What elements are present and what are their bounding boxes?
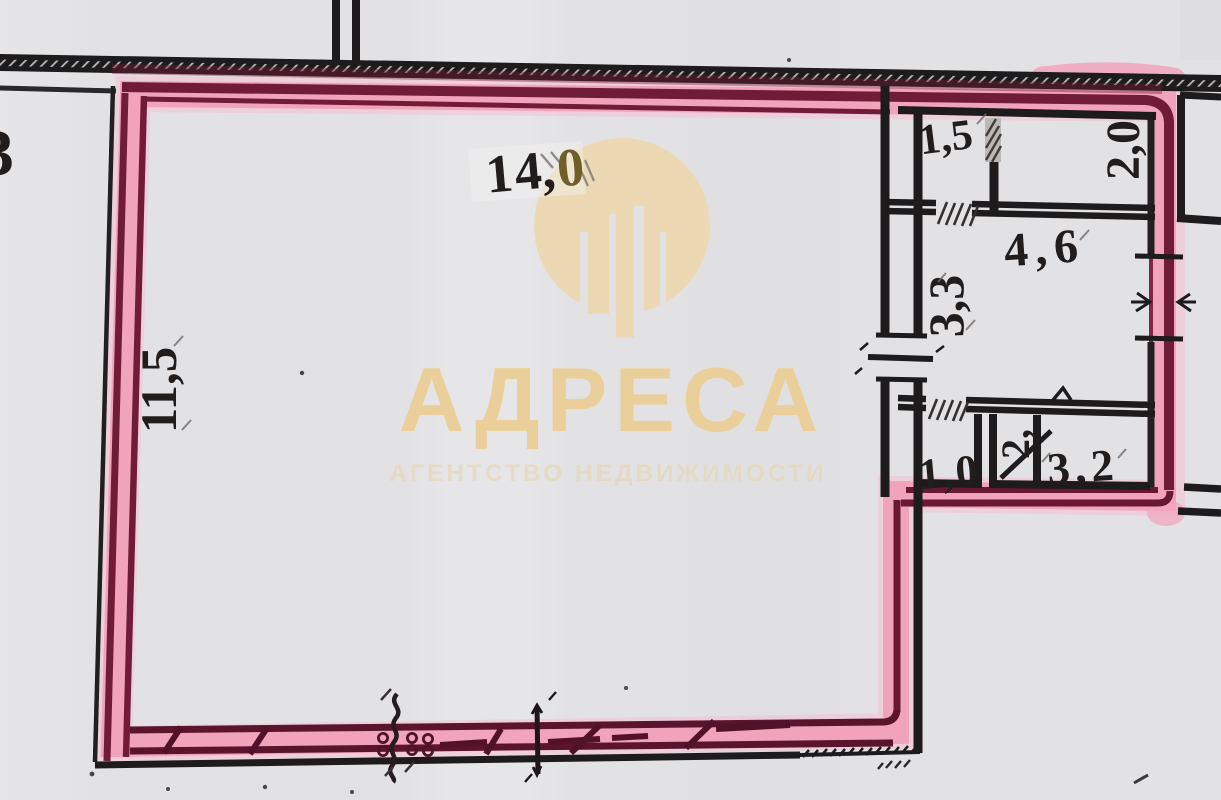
svg-text:1,0: 1,0 bbox=[917, 445, 982, 499]
svg-text:3,2: 3,2 bbox=[1046, 439, 1121, 494]
svg-text:14,0: 14,0 bbox=[483, 136, 588, 205]
svg-text:АГЕНТСТВО НЕДВИЖИМОСТИ: АГЕНТСТВО НЕДВИЖИМОСТИ bbox=[389, 460, 826, 487]
svg-text:4,6: 4,6 bbox=[1002, 219, 1086, 278]
svg-text:3: 3 bbox=[0, 117, 14, 190]
svg-text:1,5: 1,5 bbox=[916, 111, 975, 164]
svg-text:11,5: 11,5 bbox=[132, 347, 188, 433]
svg-text:2,: 2, bbox=[993, 429, 1038, 459]
svg-text:3,3: 3,3 bbox=[918, 275, 974, 338]
svg-text:АДРЕСА: АДРЕСА bbox=[399, 350, 825, 451]
svg-text:2,0: 2,0 bbox=[1097, 120, 1150, 180]
